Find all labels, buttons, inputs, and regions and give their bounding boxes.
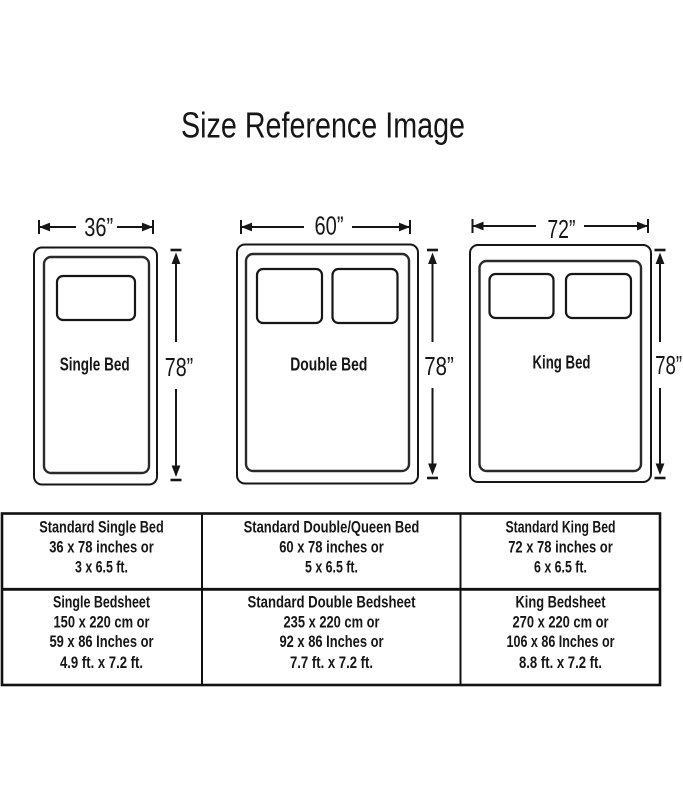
svg-text:King Bed: King Bed — [533, 352, 591, 372]
svg-text:78”: 78” — [655, 352, 682, 380]
svg-text:78”: 78” — [424, 353, 454, 381]
svg-text:6 x 6.5 ft.: 6 x 6.5 ft. — [534, 558, 587, 576]
svg-text:3 x 6.5 ft.: 3 x 6.5 ft. — [75, 558, 128, 576]
svg-text:150 x 220 cm or: 150 x 220 cm or — [54, 613, 150, 631]
svg-text:36”: 36” — [84, 214, 113, 242]
svg-text:235 x 220 cm or: 235 x 220 cm or — [284, 613, 380, 631]
svg-text:106 x 86 Inches or: 106 x 86 Inches or — [507, 633, 615, 651]
svg-text:5 x 6.5 ft.: 5 x 6.5 ft. — [305, 558, 358, 576]
svg-text:Standard King Bed: Standard King Bed — [506, 518, 616, 536]
svg-text:Standard Double Bedsheet: Standard Double Bedsheet — [248, 594, 416, 612]
svg-text:60 x 78 inches or: 60 x 78 inches or — [279, 538, 384, 556]
svg-text:7.7 ft. x 7.2 ft.: 7.7 ft. x 7.2 ft. — [290, 654, 373, 672]
svg-text:Double Bed: Double Bed — [290, 354, 367, 374]
svg-text:72 x 78 inches or: 72 x 78 inches or — [508, 538, 613, 556]
svg-text:36 x 78 inches or: 36 x 78 inches or — [49, 538, 154, 556]
svg-text:Single Bedsheet: Single Bedsheet — [53, 594, 150, 612]
svg-text:Size Reference Image: Size Reference Image — [181, 105, 465, 146]
svg-text:270 x 220 cm or: 270 x 220 cm or — [513, 613, 609, 631]
svg-text:72”: 72” — [547, 216, 575, 244]
svg-text:4.9 ft. x 7.2 ft.: 4.9 ft. x 7.2 ft. — [60, 654, 143, 672]
svg-text:78”: 78” — [165, 354, 193, 382]
svg-text:92 x 86 Inches or: 92 x 86 Inches or — [280, 633, 384, 651]
svg-text:King Bedsheet: King Bedsheet — [516, 594, 606, 612]
svg-text:59 x 86 Inches or: 59 x 86 Inches or — [50, 633, 154, 651]
svg-text:Single Bed: Single Bed — [60, 355, 130, 375]
svg-text:Standard Single Bed: Standard Single Bed — [39, 518, 164, 536]
svg-text:60”: 60” — [315, 213, 344, 241]
svg-text:8.8 ft. x 7.2 ft.: 8.8 ft. x 7.2 ft. — [519, 654, 602, 672]
svg-text:Standard Double/Queen Bed: Standard Double/Queen Bed — [244, 518, 420, 536]
